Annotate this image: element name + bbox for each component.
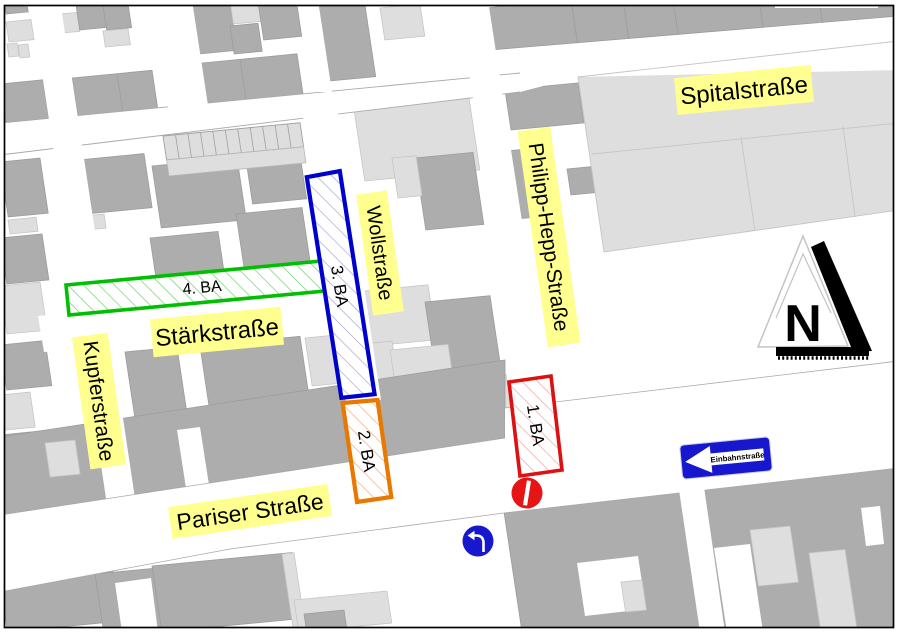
- svg-text:N: N: [784, 295, 822, 353]
